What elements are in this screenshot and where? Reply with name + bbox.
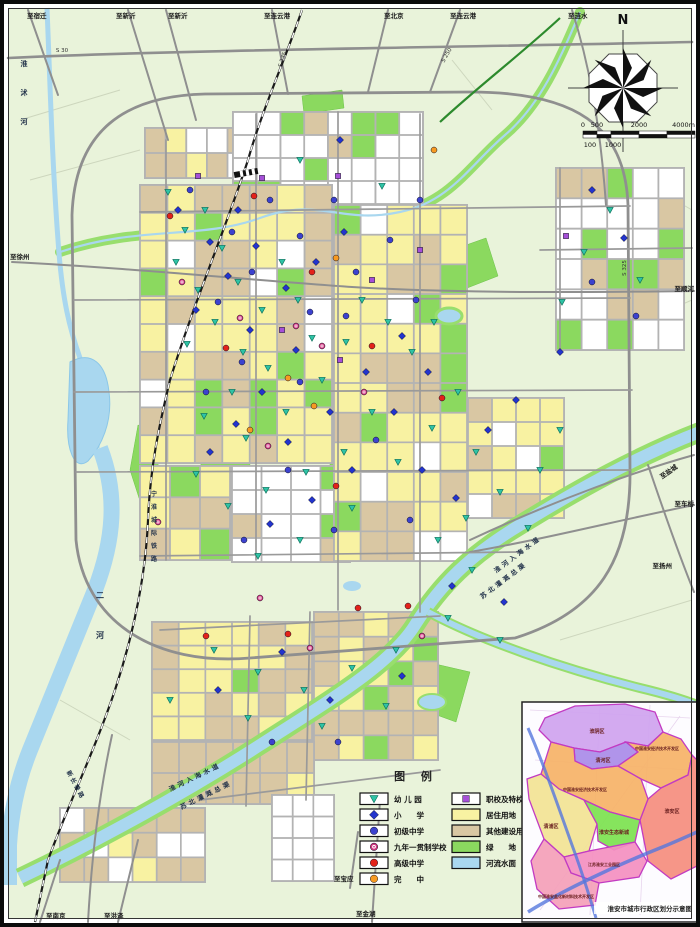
south-pond bbox=[418, 694, 446, 710]
city-block bbox=[168, 381, 194, 407]
city-block bbox=[251, 408, 277, 434]
symbol-nine-year-dot bbox=[181, 281, 182, 282]
inset-district-label: 中国淮安经济技术开发区 bbox=[563, 786, 607, 792]
city-block bbox=[85, 858, 107, 881]
edge-destination-label: 至新沂 bbox=[116, 11, 136, 20]
city-block bbox=[153, 694, 178, 716]
city-block bbox=[153, 743, 178, 772]
city-block bbox=[441, 236, 466, 264]
symbol-junior-middle bbox=[239, 359, 245, 365]
city-block bbox=[201, 498, 229, 528]
city-block bbox=[223, 186, 249, 212]
scale-top-label: 0 bbox=[581, 121, 585, 129]
city-block bbox=[353, 182, 375, 203]
symbol-nine-year-dot bbox=[421, 635, 422, 636]
city-block bbox=[141, 269, 167, 295]
city-block bbox=[414, 638, 437, 661]
city-block bbox=[469, 423, 491, 445]
city-block bbox=[353, 136, 375, 157]
city-block bbox=[541, 447, 563, 469]
symbol-junior-middle bbox=[331, 197, 337, 203]
city-block bbox=[441, 503, 466, 531]
scale-segment bbox=[611, 135, 639, 139]
city-block bbox=[141, 242, 167, 268]
city-block bbox=[273, 839, 292, 859]
city-block bbox=[180, 623, 205, 645]
city-block bbox=[362, 414, 387, 442]
city-block bbox=[362, 503, 387, 531]
symbol-junior-middle bbox=[267, 197, 273, 203]
city-block bbox=[292, 539, 320, 561]
city-block bbox=[441, 325, 466, 353]
symbol-complete-middle bbox=[285, 375, 291, 381]
road-number-label: S 325 bbox=[622, 260, 628, 276]
city-block bbox=[400, 113, 422, 134]
city-block bbox=[294, 839, 313, 859]
city-block bbox=[340, 712, 363, 735]
symbol-senior-middle bbox=[369, 343, 375, 349]
symbol-junior-middle bbox=[343, 313, 349, 319]
city-block bbox=[196, 353, 222, 379]
city-block bbox=[415, 206, 440, 234]
symbol-junior-middle bbox=[241, 537, 247, 543]
city-block bbox=[469, 495, 491, 517]
city-block bbox=[329, 113, 351, 134]
symbol-junior-middle bbox=[407, 517, 413, 523]
city-block bbox=[389, 736, 412, 759]
symbol-junior-middle bbox=[249, 269, 255, 275]
city-block bbox=[493, 471, 515, 493]
symbol-senior-middle bbox=[355, 605, 361, 611]
city-block bbox=[278, 353, 304, 379]
symbol-nine-year-dot bbox=[373, 846, 375, 848]
city-block bbox=[141, 186, 167, 212]
city-block bbox=[167, 129, 186, 152]
city-block bbox=[208, 154, 227, 177]
city-block bbox=[196, 408, 222, 434]
scale-segment bbox=[597, 135, 611, 139]
city-block bbox=[517, 447, 539, 469]
edge-destination-label: 至涟水 bbox=[568, 11, 588, 20]
city-block bbox=[208, 129, 227, 152]
city-block bbox=[182, 858, 204, 881]
symbol-vocational-school bbox=[335, 173, 340, 178]
city-block bbox=[168, 242, 194, 268]
scale-bottom-label: 100 bbox=[584, 141, 596, 149]
legend-title: 图 例 bbox=[394, 769, 438, 783]
scale-segment bbox=[597, 131, 611, 135]
symbol-junior-middle bbox=[203, 389, 209, 395]
city-block bbox=[541, 399, 563, 421]
city-block bbox=[659, 290, 683, 319]
city-block bbox=[388, 414, 413, 442]
symbol-complete-middle bbox=[247, 427, 253, 433]
city-block bbox=[362, 384, 387, 412]
city-block bbox=[400, 159, 422, 180]
city-block bbox=[196, 214, 222, 240]
city-block bbox=[153, 670, 178, 692]
city-block bbox=[153, 623, 178, 645]
symbol-junior-middle bbox=[353, 269, 359, 275]
legend-item-label: 职校及特校 bbox=[486, 794, 524, 804]
map-feature-label: 铁 bbox=[151, 542, 157, 550]
legend-swatch-box bbox=[452, 809, 480, 821]
city-block bbox=[388, 354, 413, 382]
city-block bbox=[306, 353, 332, 379]
city-block bbox=[365, 687, 388, 710]
symbol-vocational-school bbox=[195, 173, 200, 178]
scale-segment bbox=[583, 135, 597, 139]
symbol-nine-year-dot bbox=[363, 391, 364, 392]
city-block bbox=[168, 408, 194, 434]
edge-destination-label: 至北京 bbox=[384, 11, 404, 20]
symbol-vocational-school bbox=[259, 175, 264, 180]
city-block bbox=[388, 503, 413, 531]
city-block bbox=[362, 473, 387, 501]
inset-district-label: 清河区 bbox=[595, 757, 610, 764]
city-block bbox=[141, 381, 167, 407]
edge-destination-label: 至徐州 bbox=[10, 252, 30, 261]
symbol-vocational-school bbox=[279, 327, 284, 332]
city-block bbox=[187, 129, 206, 152]
map-feature-label: 淮 bbox=[151, 503, 157, 511]
city-block bbox=[260, 670, 285, 692]
city-block bbox=[233, 717, 258, 739]
symbol-junior-middle bbox=[373, 437, 379, 443]
symbol-complete-middle bbox=[311, 403, 317, 409]
city-block bbox=[305, 113, 327, 134]
symbol-complete-middle bbox=[370, 875, 378, 883]
legend-item-label: 绿 地 bbox=[486, 842, 516, 852]
symbol-nine-year-dot bbox=[295, 325, 296, 326]
edge-destination-label: 至连云港 bbox=[450, 11, 477, 20]
city-block bbox=[196, 325, 222, 351]
symbol-junior-middle bbox=[297, 233, 303, 239]
city-block bbox=[182, 809, 204, 832]
city-block bbox=[196, 436, 222, 462]
symbol-senior-middle bbox=[333, 483, 339, 489]
inset-district-label: 淮安区 bbox=[664, 808, 679, 815]
city-block bbox=[389, 687, 412, 710]
city-block bbox=[493, 399, 515, 421]
symbol-senior-middle bbox=[251, 193, 257, 199]
city-block bbox=[281, 136, 303, 157]
city-block bbox=[362, 443, 387, 471]
legend-item-label: 高级中学 bbox=[394, 858, 424, 868]
city-block bbox=[180, 694, 205, 716]
city-block bbox=[281, 113, 303, 134]
city-block bbox=[634, 260, 658, 289]
city-block bbox=[146, 154, 165, 177]
city-block bbox=[583, 290, 607, 319]
city-block bbox=[634, 199, 658, 228]
city-block bbox=[294, 796, 313, 816]
city-block bbox=[376, 159, 398, 180]
city-block bbox=[262, 491, 290, 513]
inset-district-label: 中国淮安盐化新材料技术开发区 bbox=[538, 893, 594, 899]
symbol-vocational-school bbox=[563, 233, 568, 238]
city-block bbox=[441, 206, 466, 234]
edge-destination-label: 至新沂 bbox=[168, 11, 188, 20]
symbol-complete-middle bbox=[333, 255, 339, 261]
scale-segment bbox=[639, 135, 667, 139]
city-block bbox=[314, 796, 333, 816]
city-block bbox=[353, 113, 375, 134]
city-block bbox=[223, 353, 249, 379]
scale-segment bbox=[667, 131, 695, 135]
symbol-senior-middle bbox=[309, 269, 315, 275]
scale-segment bbox=[611, 131, 639, 135]
city-block bbox=[315, 662, 338, 685]
symbol-senior-middle bbox=[370, 859, 378, 867]
map-feature-label: 河 bbox=[96, 630, 104, 640]
legend-item-label: 居住用地 bbox=[486, 810, 516, 820]
city-block bbox=[278, 408, 304, 434]
city-block bbox=[223, 381, 249, 407]
city-block bbox=[583, 230, 607, 259]
city-block bbox=[153, 717, 178, 739]
symbol-nine-year-dot bbox=[321, 345, 322, 346]
city-block bbox=[273, 796, 292, 816]
city-block bbox=[415, 265, 440, 293]
city-block bbox=[340, 613, 363, 636]
city-block bbox=[362, 532, 387, 560]
city-block bbox=[278, 297, 304, 323]
city-block bbox=[415, 354, 440, 382]
city-block bbox=[206, 694, 231, 716]
map-feature-label: 城 bbox=[151, 516, 157, 524]
city-block bbox=[469, 399, 491, 421]
city-block bbox=[294, 817, 313, 837]
park-lake bbox=[436, 308, 462, 324]
city-block bbox=[141, 353, 167, 379]
symbol-vocational-school bbox=[463, 796, 470, 803]
city-block bbox=[251, 325, 277, 351]
city-block bbox=[659, 230, 683, 259]
city-block bbox=[634, 321, 658, 350]
city-block bbox=[415, 473, 440, 501]
map-feature-label: 河 bbox=[21, 117, 28, 126]
legend-swatch-box bbox=[452, 857, 480, 869]
symbol-vocational-school bbox=[337, 357, 342, 362]
city-block bbox=[305, 159, 327, 180]
city-block bbox=[233, 694, 258, 716]
city-block bbox=[517, 399, 539, 421]
city-block bbox=[278, 186, 304, 212]
city-block bbox=[171, 498, 199, 528]
city-block bbox=[292, 515, 320, 537]
edge-destination-label: 至宿迁 bbox=[27, 11, 47, 20]
city-block bbox=[388, 384, 413, 412]
city-block bbox=[167, 154, 186, 177]
city-block bbox=[141, 325, 167, 351]
city-block bbox=[273, 817, 292, 837]
legend-item-label: 小 学 bbox=[394, 810, 424, 820]
city-block bbox=[493, 423, 515, 445]
edge-destination-label: 至扬州 bbox=[653, 561, 673, 570]
symbol-senior-middle bbox=[203, 633, 209, 639]
city-block bbox=[414, 736, 437, 759]
symbol-complete-middle bbox=[431, 147, 437, 153]
symbol-nine-year-dot bbox=[239, 317, 240, 318]
city-block bbox=[493, 447, 515, 469]
city-block bbox=[659, 169, 683, 198]
city-block bbox=[441, 443, 466, 471]
city-block bbox=[376, 136, 398, 157]
map-feature-label: 淮 bbox=[21, 59, 28, 68]
inset-caption: 淮安市城市行政区划分示意图 bbox=[608, 904, 693, 913]
city-block bbox=[314, 839, 333, 859]
symbol-junior-middle bbox=[229, 229, 235, 235]
inset-district-label: 淮安生态新城 bbox=[599, 829, 629, 836]
city-block bbox=[469, 447, 491, 469]
city-block bbox=[659, 321, 683, 350]
city-block bbox=[306, 381, 332, 407]
city-block bbox=[415, 532, 440, 560]
city-block bbox=[182, 834, 204, 857]
city-block bbox=[288, 743, 313, 772]
city-block bbox=[362, 236, 387, 264]
city-block bbox=[262, 539, 290, 561]
inset-admin-map: 淮阴区清河区中国淮安经济技术开发区淮安区中国淮安经济技术开发区清浦区淮安生态新城… bbox=[522, 702, 698, 922]
symbol-junior-middle bbox=[417, 197, 423, 203]
city-block bbox=[365, 613, 388, 636]
legend-item-label: 幼 儿 园 bbox=[394, 794, 422, 804]
city-block bbox=[262, 515, 290, 537]
city-block bbox=[469, 471, 491, 493]
legend-item-label: 完 中 bbox=[394, 874, 424, 884]
symbol-nine-year-dot bbox=[157, 521, 158, 522]
city-block bbox=[251, 353, 277, 379]
city-block bbox=[180, 717, 205, 739]
city-block bbox=[414, 712, 437, 735]
city-block bbox=[414, 662, 437, 685]
scale-segment bbox=[667, 135, 695, 139]
edge-destination-label: 至宝应 bbox=[334, 874, 354, 883]
symbol-nine-year-dot bbox=[267, 445, 268, 446]
city-block bbox=[389, 712, 412, 735]
symbol-junior-middle bbox=[387, 237, 393, 243]
city-block bbox=[292, 491, 320, 513]
legend-item-label: 初级中学 bbox=[394, 826, 424, 836]
symbol-senior-middle bbox=[167, 213, 173, 219]
city-block bbox=[146, 129, 165, 152]
city-block bbox=[315, 736, 338, 759]
city-block bbox=[493, 495, 515, 517]
city-block bbox=[376, 113, 398, 134]
inset-district-label: 淮阴区 bbox=[589, 728, 604, 735]
city-block bbox=[180, 670, 205, 692]
symbol-senior-middle bbox=[439, 395, 445, 401]
compass-north-label: N bbox=[618, 13, 629, 28]
city-block bbox=[365, 736, 388, 759]
city-block bbox=[415, 325, 440, 353]
scale-top-label: 2000 bbox=[631, 121, 648, 129]
city-block bbox=[314, 860, 333, 880]
city-block bbox=[353, 159, 375, 180]
symbol-junior-middle bbox=[331, 527, 337, 533]
city-block bbox=[278, 436, 304, 462]
city-block bbox=[388, 473, 413, 501]
symbol-junior-middle bbox=[285, 467, 291, 473]
city-block bbox=[314, 817, 333, 837]
city-block bbox=[541, 423, 563, 445]
symbol-vocational-school bbox=[417, 247, 422, 252]
symbol-junior-middle bbox=[370, 827, 378, 835]
symbol-junior-middle bbox=[187, 187, 193, 193]
city-block bbox=[251, 436, 277, 462]
inset-district-label: 清浦区 bbox=[543, 823, 558, 830]
symbol-senior-middle bbox=[223, 345, 229, 351]
city-block bbox=[141, 297, 167, 323]
legend-swatch-box bbox=[452, 841, 480, 853]
map-feature-label: 际 bbox=[151, 529, 157, 537]
city-block bbox=[258, 136, 280, 157]
city-block bbox=[315, 638, 338, 661]
city-block bbox=[206, 717, 231, 739]
road-number-label: S 30 bbox=[56, 48, 69, 54]
symbol-junior-middle bbox=[297, 379, 303, 385]
city-block bbox=[223, 297, 249, 323]
city-block bbox=[415, 384, 440, 412]
symbol-junior-middle bbox=[335, 739, 341, 745]
city-block bbox=[415, 503, 440, 531]
symbol-senior-middle bbox=[405, 603, 411, 609]
city-block bbox=[583, 321, 607, 350]
city-block bbox=[223, 436, 249, 462]
city-block bbox=[388, 532, 413, 560]
map-feature-label: 二 bbox=[96, 591, 104, 600]
legend-item-label: 九年一贯制学校 bbox=[393, 842, 447, 852]
inset-district-label: 中国淮安经济技术开发区 bbox=[635, 745, 679, 751]
city-block bbox=[415, 443, 440, 471]
symbol-senior-middle bbox=[285, 631, 291, 637]
city-block bbox=[365, 712, 388, 735]
map-feature-label: 沭 bbox=[21, 88, 28, 97]
city-block bbox=[223, 242, 249, 268]
city-block bbox=[260, 694, 285, 716]
city-block bbox=[441, 265, 466, 293]
city-block bbox=[517, 423, 539, 445]
city-block bbox=[180, 743, 205, 772]
map-feature-label: 宁 bbox=[151, 490, 157, 498]
city-block bbox=[305, 136, 327, 157]
city-block bbox=[306, 214, 332, 240]
symbol-junior-middle bbox=[269, 739, 275, 745]
city-block bbox=[415, 414, 440, 442]
map-feature-label: 路 bbox=[151, 555, 158, 563]
legend-swatch-box bbox=[452, 825, 480, 837]
city-block bbox=[196, 186, 222, 212]
city-block bbox=[273, 860, 292, 880]
pond bbox=[343, 581, 361, 591]
city-block bbox=[233, 670, 258, 692]
city-block bbox=[659, 199, 683, 228]
symbol-junior-middle bbox=[589, 279, 595, 285]
symbol-nine-year-dot bbox=[309, 647, 310, 648]
symbol-nine-year-dot bbox=[259, 597, 260, 598]
scale-top-label: 500 bbox=[591, 121, 603, 129]
city-block bbox=[158, 858, 180, 881]
city-block bbox=[168, 436, 194, 462]
symbol-junior-middle bbox=[307, 309, 313, 315]
city-block bbox=[634, 169, 658, 198]
scale-segment bbox=[639, 131, 667, 135]
planning-map-canvas: 至宿迁至新沂至新沂至连云港至北京至连云港至涟水至徐州至顺河至盐城至车桥至扬州至南… bbox=[0, 0, 700, 927]
scale-bottom-label: 1000 bbox=[605, 141, 622, 149]
city-block bbox=[306, 325, 332, 351]
city-block bbox=[306, 436, 332, 462]
